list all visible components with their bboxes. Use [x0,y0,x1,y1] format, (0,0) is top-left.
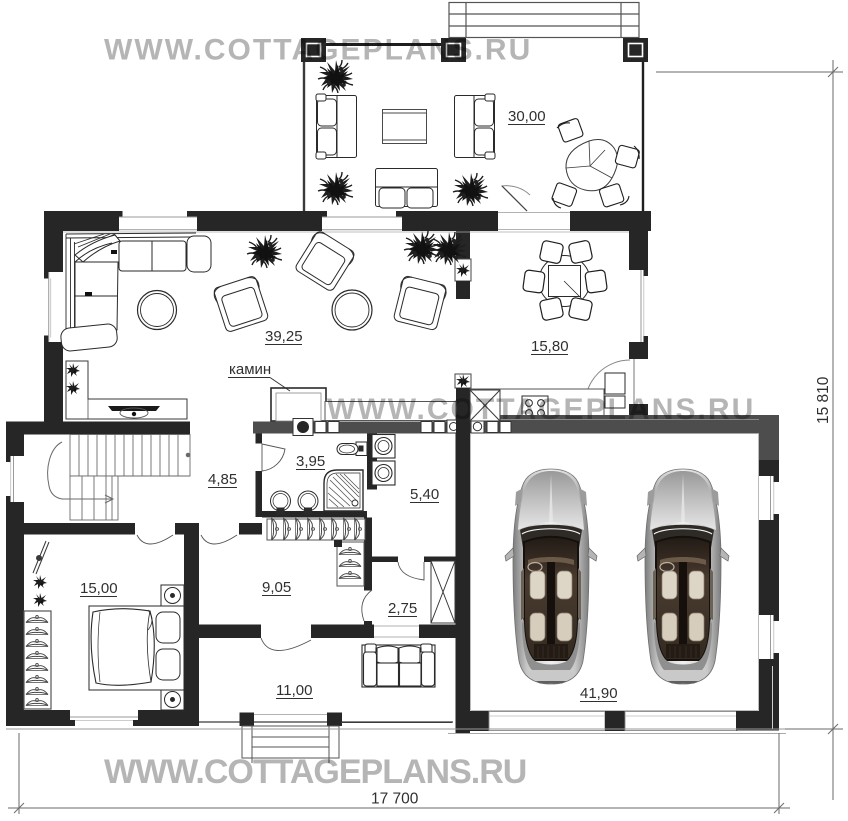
svg-text:камин: камин [229,361,271,378]
svg-text:15 810: 15 810 [815,376,832,424]
svg-text:41,90: 41,90 [580,685,618,702]
svg-text:15,80: 15,80 [531,338,569,355]
svg-text:WWW.COTTAGEPLANS.RU: WWW.COTTAGEPLANS.RU [104,34,532,67]
svg-text:WWW.COTTAGEPLANS.RU: WWW.COTTAGEPLANS.RU [104,753,526,791]
svg-text:4,85: 4,85 [208,471,237,488]
svg-text:9,05: 9,05 [262,579,291,596]
svg-text:2,75: 2,75 [388,600,417,617]
svg-text:17 700: 17 700 [371,791,419,808]
svg-text:30,00: 30,00 [508,108,546,125]
svg-text:WWW.COTTAGEPLANS.RU: WWW.COTTAGEPLANS.RU [327,393,755,426]
svg-text:11,00: 11,00 [276,682,312,699]
svg-text:5,40: 5,40 [410,486,439,503]
svg-text:3,95: 3,95 [296,453,325,470]
svg-text:39,25: 39,25 [265,328,303,345]
svg-text:15,00: 15,00 [80,580,118,597]
